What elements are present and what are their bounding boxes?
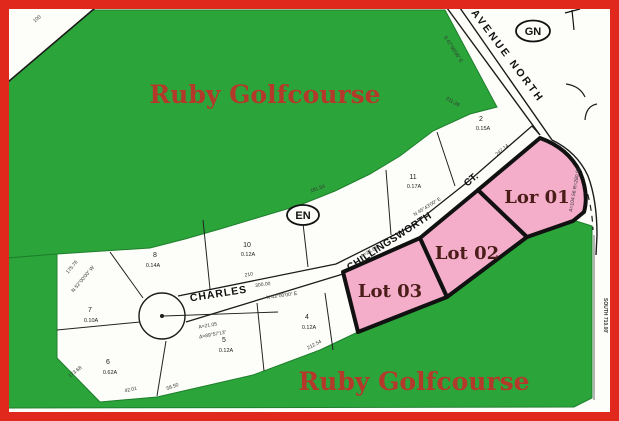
parcel-number: 6 <box>106 359 110 366</box>
parcel-number: 10 <box>243 242 251 249</box>
parcel-area: 0.12A <box>219 348 234 354</box>
parcel-number: 8 <box>153 252 157 259</box>
en-marker-label: EN <box>295 210 310 222</box>
lot-02-label: Lot 02 <box>435 243 499 264</box>
gn-marker-label: GN <box>525 26 542 38</box>
parcel-area: 0.14A <box>146 263 161 269</box>
south-boundary-text: SOUTH 710.00' <box>602 298 608 333</box>
plat-map-svg: GN EN AVENUE NORTH CHILLINGSWORTH CT. CH… <box>0 0 619 421</box>
parcel-area: 0.15A <box>476 126 491 132</box>
parcel-number: 11 <box>409 174 416 181</box>
lot-03-label: Lot 03 <box>358 281 422 302</box>
parcel-area: 0.10A <box>84 318 99 324</box>
parcel-area: 0.12A <box>302 325 317 331</box>
parcel-number: 5 <box>222 337 226 344</box>
parcel-area: 0.17A <box>407 184 422 190</box>
parcel-number: 2 <box>479 116 483 123</box>
plat-map-screenshot: GN EN AVENUE NORTH CHILLINGSWORTH CT. CH… <box>0 0 619 421</box>
parcel-number: 4 <box>305 314 309 321</box>
dimension-text: 210 <box>244 271 253 278</box>
parcel-number: 7 <box>88 307 92 314</box>
lot-01-label: Lor 01 <box>504 187 569 208</box>
culdesac-center-dot <box>160 314 164 318</box>
golfcourse-title-bottom: Ruby Golfcourse <box>298 367 529 396</box>
parcel-area: 0.62A <box>103 370 118 376</box>
parcel-area: 0.12A <box>241 252 256 258</box>
golfcourse-title-top: Ruby Golfcourse <box>149 80 380 109</box>
